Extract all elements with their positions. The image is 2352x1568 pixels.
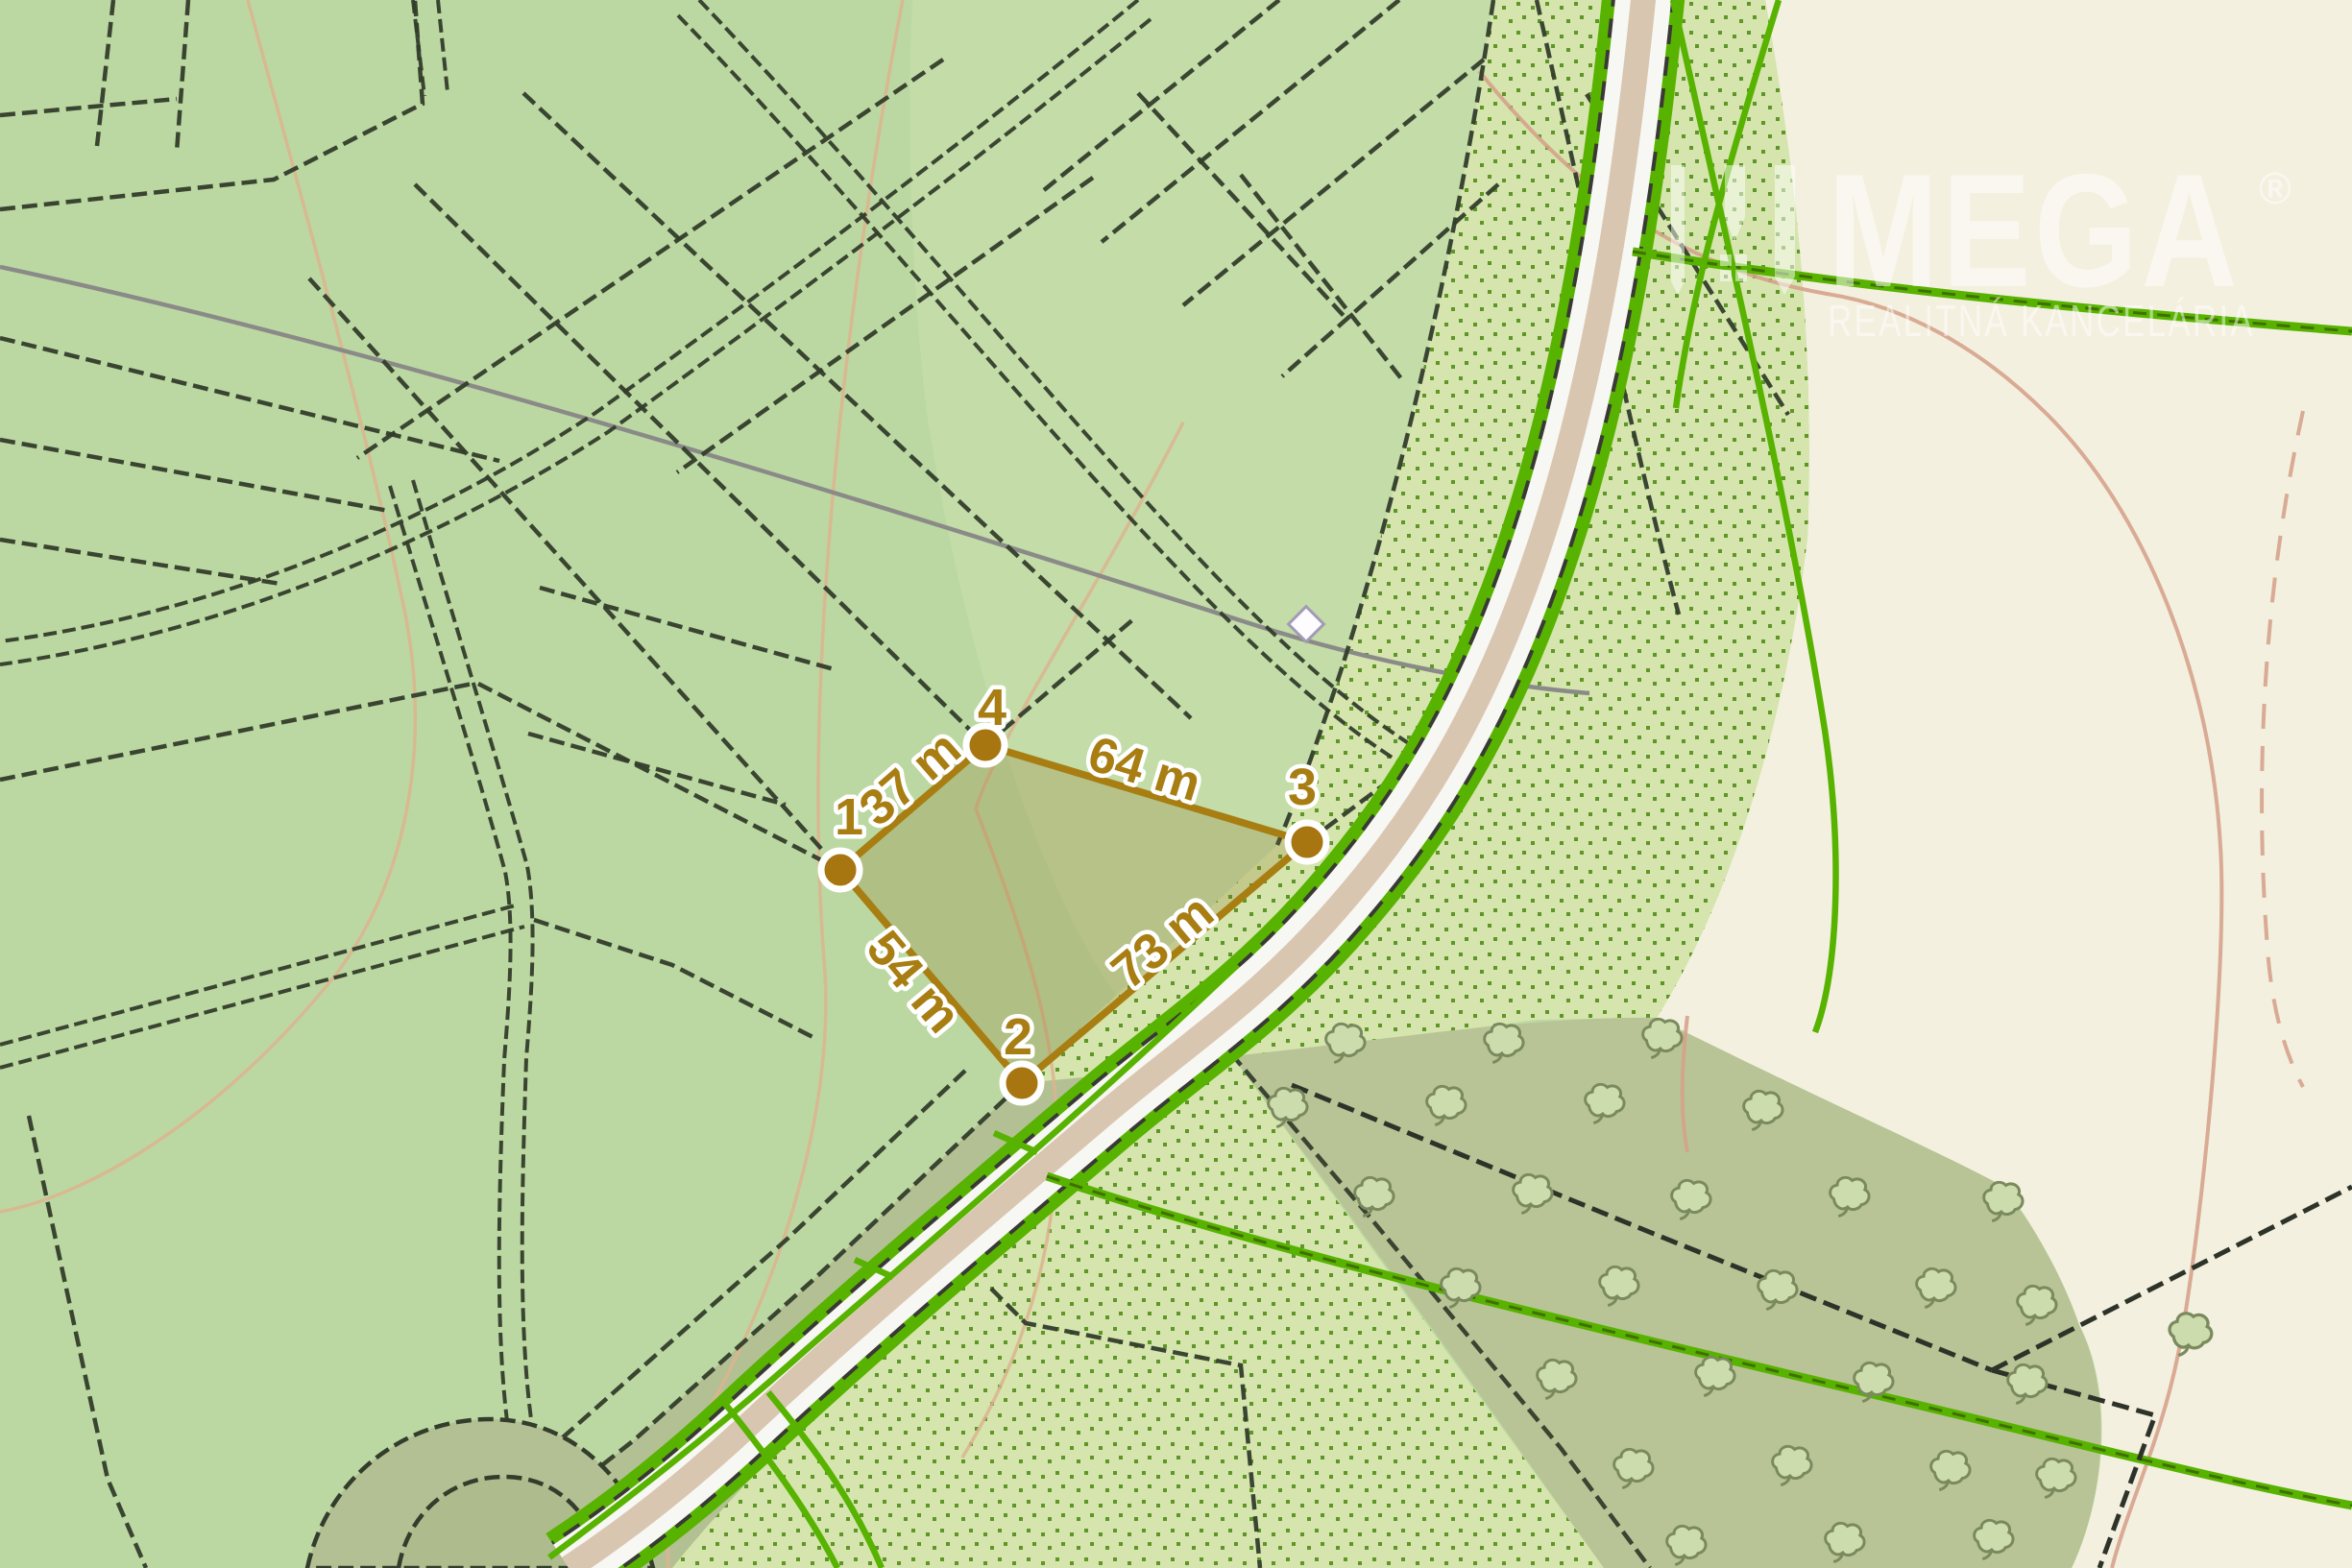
vertex-label-4: 4	[978, 679, 1006, 736]
vertex-handle-3[interactable]	[1288, 823, 1326, 861]
vertex-handle-2[interactable]	[1003, 1064, 1041, 1102]
registered-mark: ®	[2259, 163, 2291, 213]
map-canvas[interactable]: 1 37 m 64 m 54 m 73 m 2 3 4 MEGA ® REALI…	[0, 0, 2352, 1568]
vertex-label-2: 2	[1004, 1008, 1032, 1066]
vertex-label-3: 3	[1288, 759, 1317, 816]
map-viewport[interactable]: 1 37 m 64 m 54 m 73 m 2 3 4 MEGA ® REALI…	[0, 0, 2352, 1568]
watermark-subtitle-text: REALITNÁ KANCELÁRIA	[1828, 296, 2255, 346]
watermark-brand-text: MEGA	[1828, 140, 2241, 321]
vertex-handle-1[interactable]	[821, 851, 860, 889]
